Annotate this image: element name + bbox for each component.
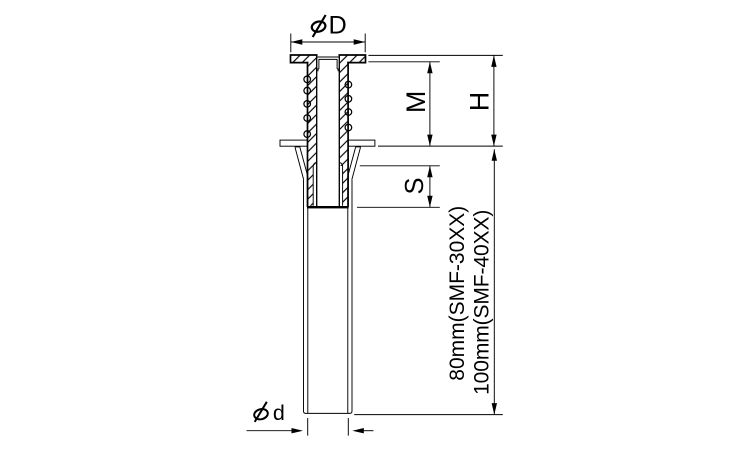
svg-text:100mm(SMF-40XX): 100mm(SMF-40XX): [471, 210, 494, 395]
svg-text:D: D: [329, 12, 347, 40]
svg-text:S: S: [401, 177, 429, 194]
svg-text:M: M: [401, 91, 431, 114]
svg-text:d: d: [273, 401, 285, 425]
svg-text:H: H: [465, 92, 495, 112]
svg-text:80mm(SMF-30XX): 80mm(SMF-30XX): [446, 206, 469, 381]
